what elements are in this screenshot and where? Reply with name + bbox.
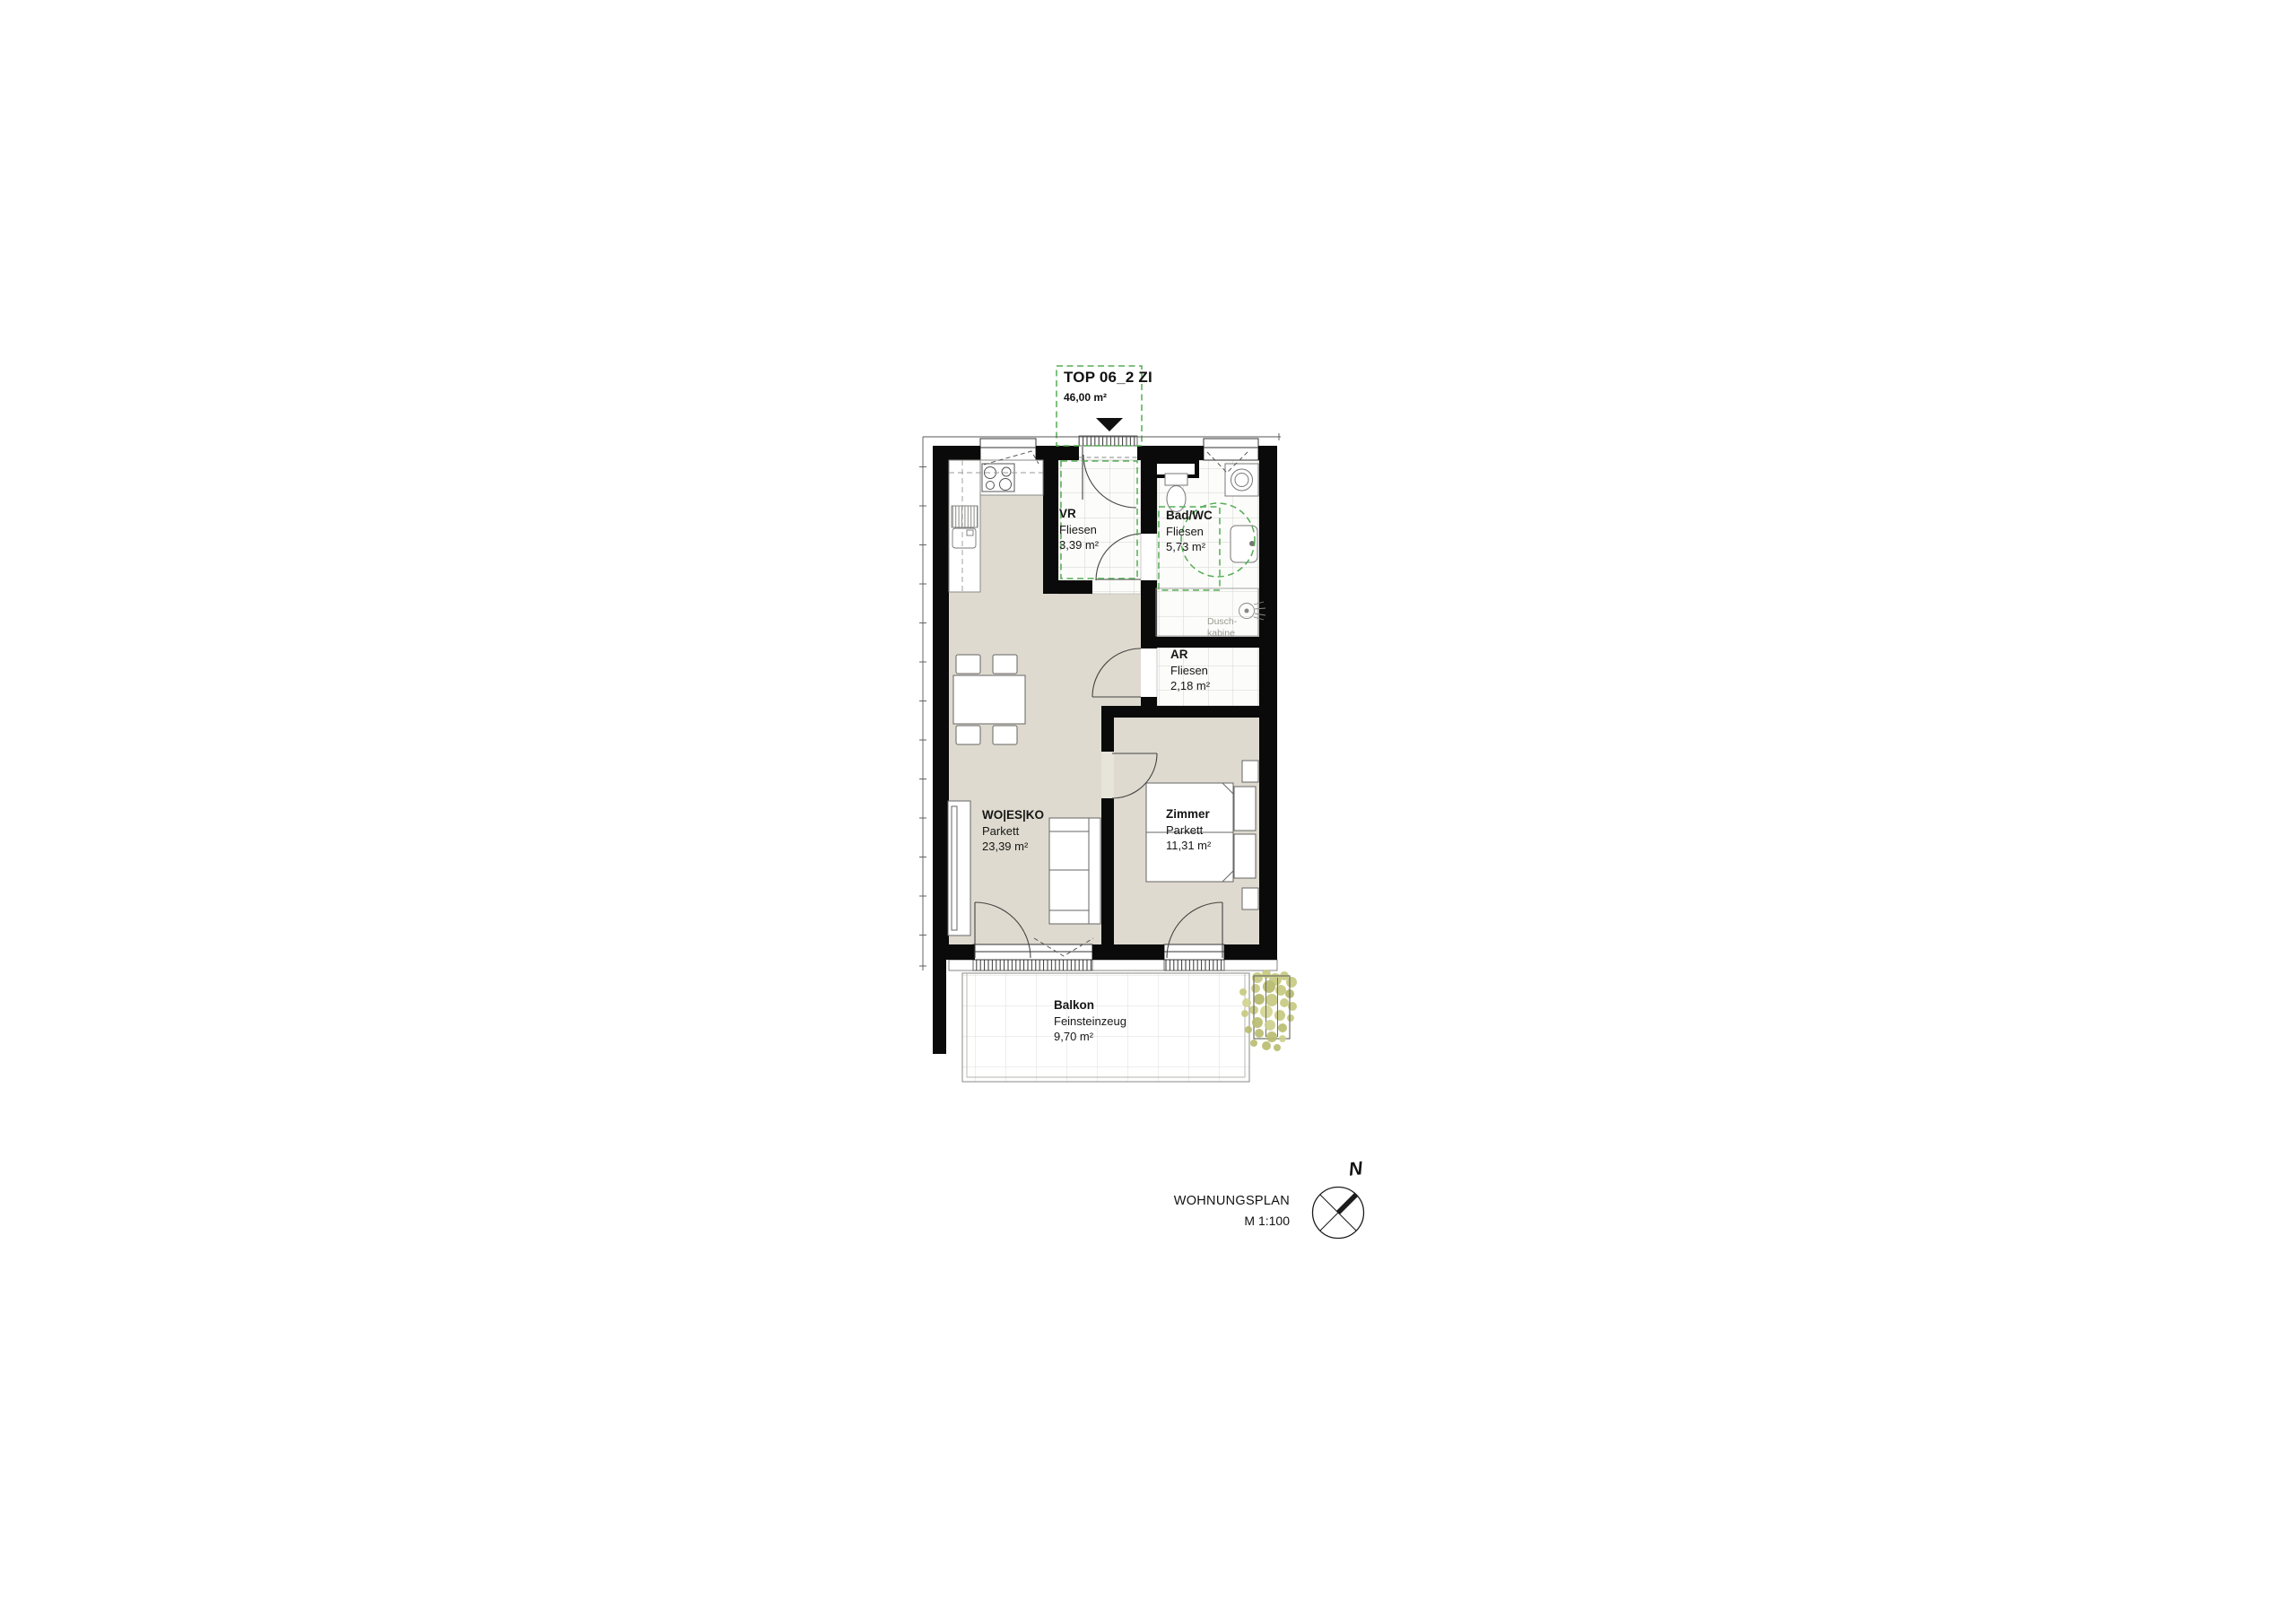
compass-north-label: N: [1348, 1158, 1364, 1180]
floorplan-page: { "unit_label": { "name": "TOP 06_2 ZI",…: [0, 0, 2296, 1610]
room-label-bad: Bad/WC Fliesen 5,73 m²: [1166, 508, 1213, 555]
stove-icon: [982, 464, 1014, 492]
entrance-arrow-icon: [1096, 418, 1123, 431]
compass-icon: [1313, 1188, 1364, 1239]
plan-scale: M 1:100: [1148, 1214, 1290, 1228]
room-label-wohnen: WO|ES|KO Parkett 23,39 m²: [982, 807, 1044, 855]
unit-name: TOP 06_2 ZI: [1064, 369, 1152, 387]
floorplan-drawing: [897, 341, 1399, 1265]
shaft-core: [1157, 464, 1195, 474]
room-label-ar: AR Fliesen 2,18 m²: [1170, 647, 1210, 694]
room-label-balkon: Balkon Feinsteinzeug 9,70 m²: [1054, 997, 1126, 1045]
unit-area: 46,00 m²: [1064, 391, 1152, 404]
wardrobe: [948, 801, 970, 936]
plan-footer: WOHNUNGSPLAN M 1:100: [1148, 1194, 1290, 1228]
unit-title: TOP 06_2 ZI 46,00 m²: [1064, 369, 1152, 404]
plan-title: WOHNUNGSPLAN: [1148, 1194, 1290, 1208]
sofa: [1049, 818, 1100, 924]
room-label-vr: VR Fliesen 3,39 m²: [1059, 506, 1099, 553]
washing-machine-icon: [1225, 464, 1258, 496]
shower-cabin-label: Dusch- kabine: [1207, 616, 1237, 639]
toilet-icon: [1165, 474, 1187, 512]
room-label-zimmer: Zimmer Parkett 11,31 m²: [1166, 806, 1211, 854]
sink-icon: [952, 506, 978, 548]
